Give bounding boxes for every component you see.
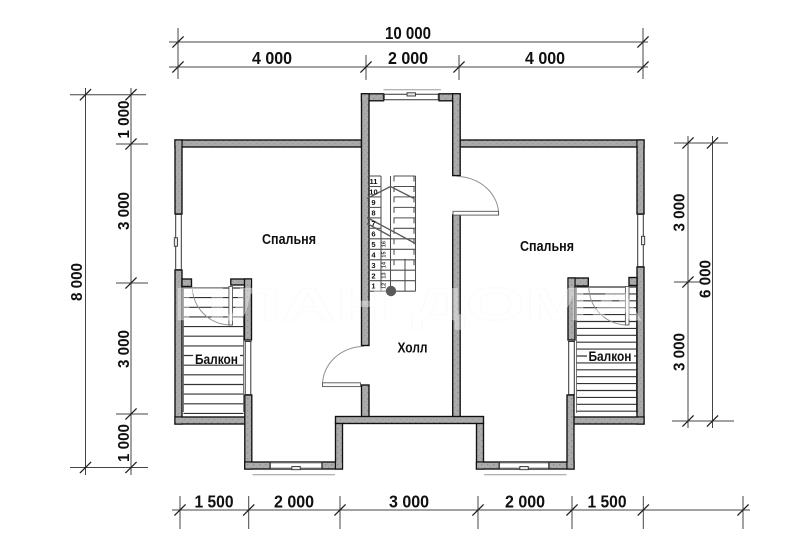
svg-text:Спальня: Спальня <box>520 239 574 255</box>
svg-text:3 000: 3 000 <box>389 491 429 511</box>
svg-text:8: 8 <box>371 208 375 217</box>
svg-text:6 000: 6 000 <box>698 260 715 298</box>
svg-text:Балкон: Балкон <box>195 352 238 367</box>
svg-text:3: 3 <box>371 261 375 270</box>
svg-text:4 000: 4 000 <box>525 48 565 68</box>
svg-text:3 000: 3 000 <box>672 333 689 371</box>
svg-text:Балкон: Балкон <box>589 349 632 364</box>
svg-text:3 000: 3 000 <box>116 330 133 368</box>
svg-text:ПЛАН ДОМА: ПЛАН ДОМА <box>173 278 643 330</box>
svg-text:1 000: 1 000 <box>116 424 133 462</box>
svg-text:2 000: 2 000 <box>274 491 314 511</box>
svg-text:1 000: 1 000 <box>116 100 133 138</box>
svg-text:10: 10 <box>369 188 377 197</box>
svg-text:Холл: Холл <box>398 341 428 357</box>
svg-text:1 500: 1 500 <box>195 491 234 511</box>
svg-text:3 000: 3 000 <box>672 193 689 231</box>
svg-text:3 000: 3 000 <box>116 192 133 230</box>
svg-text:9: 9 <box>371 198 375 207</box>
svg-text:1 500: 1 500 <box>588 491 627 511</box>
svg-text:7: 7 <box>371 219 375 228</box>
svg-text:6: 6 <box>371 229 375 238</box>
svg-text:14: 14 <box>382 261 388 268</box>
svg-text:8 000: 8 000 <box>69 263 86 301</box>
svg-text:15: 15 <box>382 251 388 257</box>
svg-text:2 000: 2 000 <box>505 491 545 511</box>
svg-text:10 000: 10 000 <box>385 23 431 43</box>
svg-text:2 000: 2 000 <box>388 48 428 68</box>
svg-text:11: 11 <box>369 177 378 186</box>
svg-text:4 000: 4 000 <box>252 48 292 68</box>
svg-text:Спальня: Спальня <box>262 232 316 248</box>
svg-text:16: 16 <box>382 241 388 247</box>
